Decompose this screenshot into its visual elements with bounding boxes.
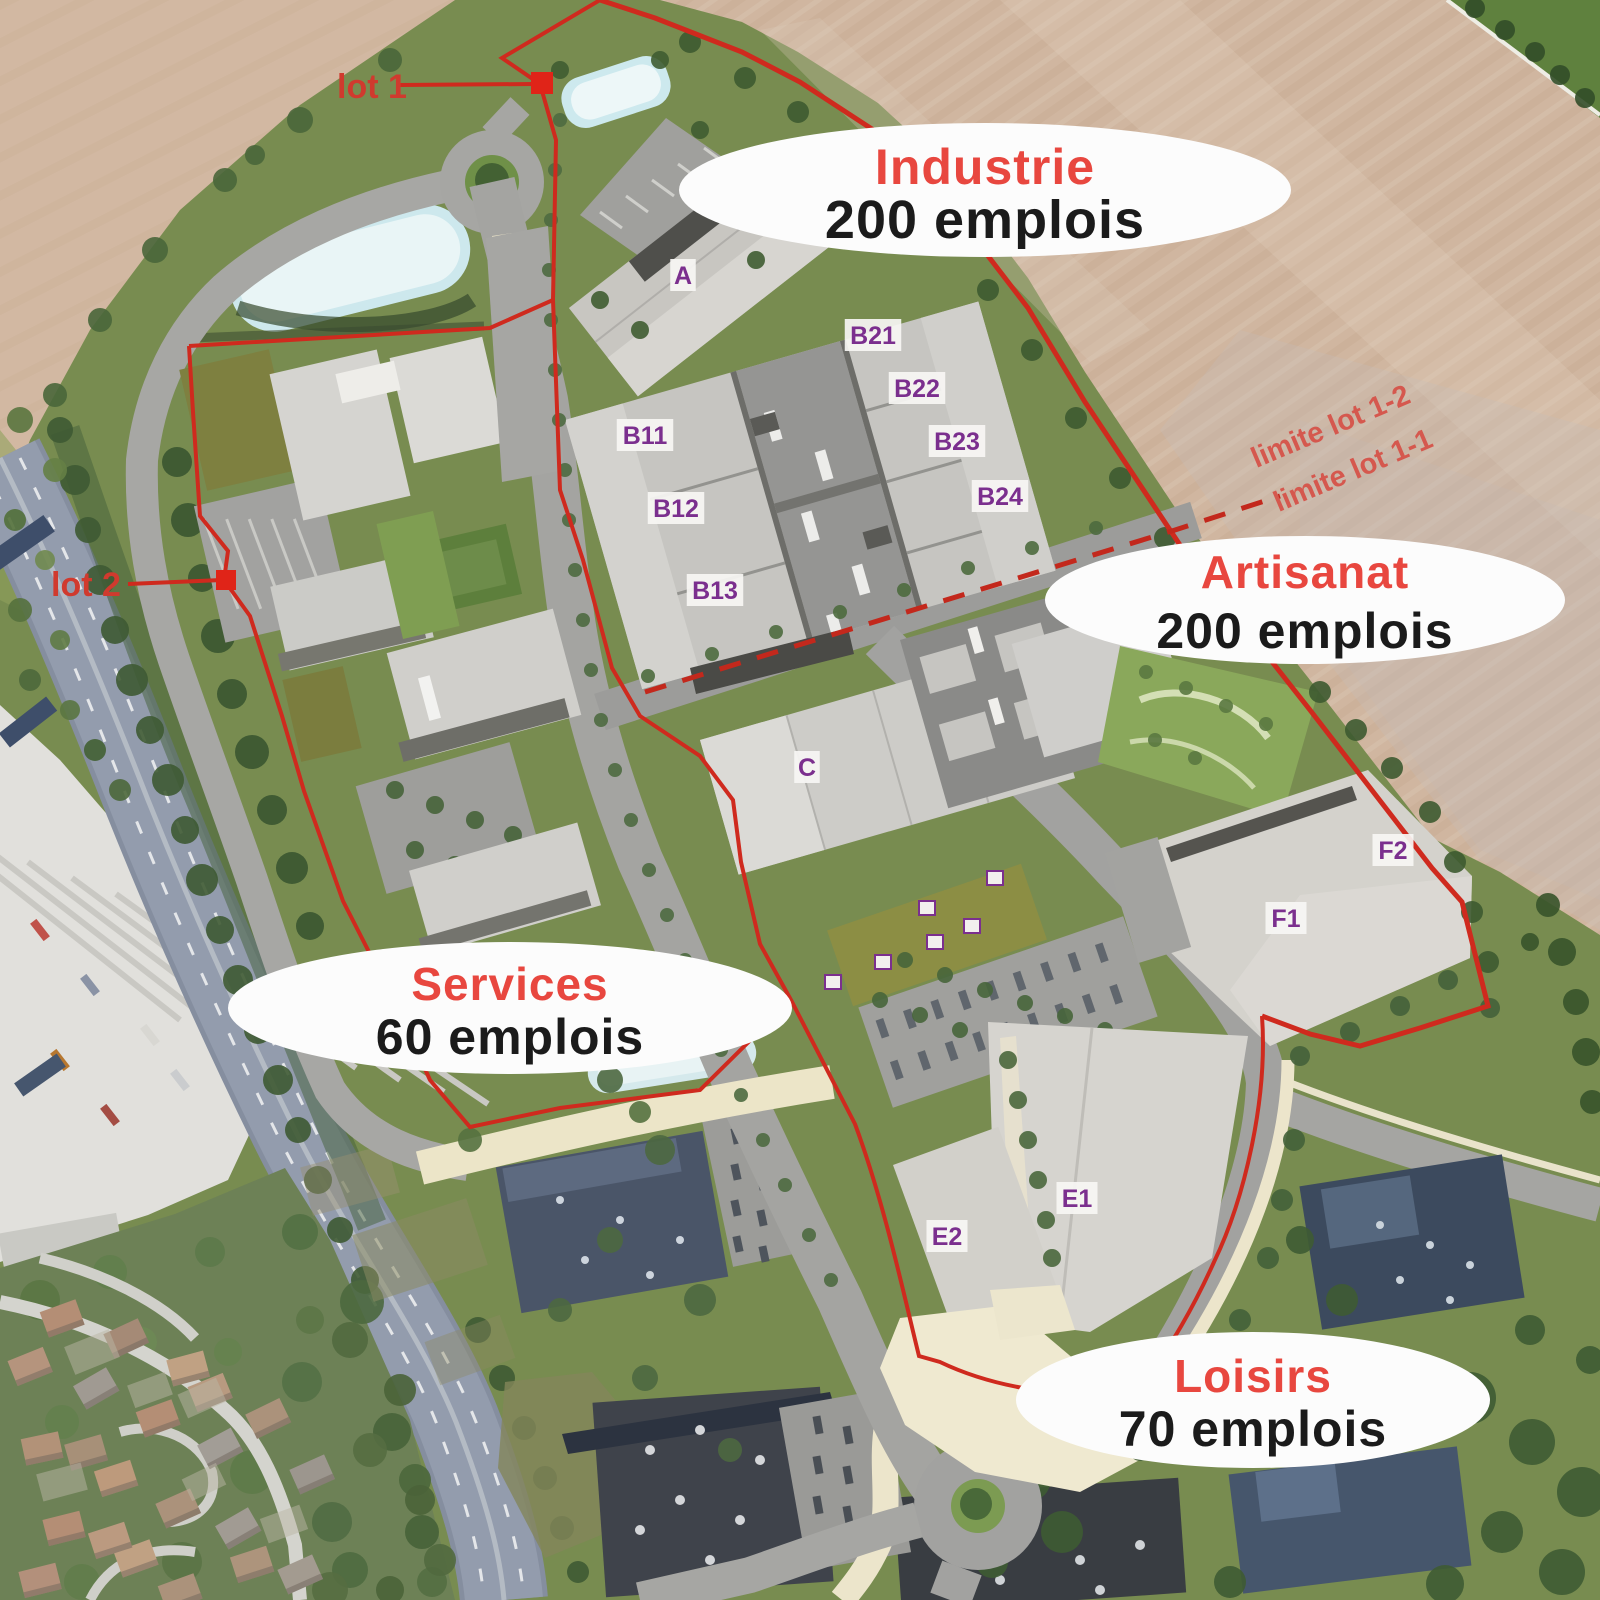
svg-text:lot 2: lot 2 — [51, 566, 121, 604]
svg-text:B23: B23 — [934, 428, 980, 456]
svg-text:B22: B22 — [894, 375, 940, 403]
svg-text:B24: B24 — [977, 483, 1023, 511]
svg-text:A: A — [674, 262, 692, 290]
svg-text:200 emplois: 200 emplois — [825, 190, 1145, 250]
svg-text:B12: B12 — [653, 495, 699, 523]
svg-text:F2: F2 — [1378, 837, 1407, 865]
svg-text:Loisirs: Loisirs — [1174, 1350, 1332, 1402]
svg-text:70 emplois: 70 emplois — [1119, 1401, 1387, 1457]
svg-text:Services: Services — [411, 958, 608, 1010]
svg-text:200 emplois: 200 emplois — [1156, 603, 1453, 659]
svg-text:B11: B11 — [623, 422, 668, 450]
svg-text:B21: B21 — [850, 322, 896, 350]
svg-text:E2: E2 — [932, 1223, 963, 1251]
svg-text:C: C — [798, 754, 816, 782]
svg-text:B13: B13 — [692, 577, 738, 605]
svg-text:F1: F1 — [1271, 905, 1300, 933]
svg-text:lot 1: lot 1 — [337, 68, 407, 106]
svg-text:Industrie: Industrie — [875, 139, 1095, 195]
svg-text:E1: E1 — [1062, 1185, 1093, 1213]
svg-text:Artisanat: Artisanat — [1201, 546, 1409, 598]
svg-text:60 emplois: 60 emplois — [376, 1009, 644, 1065]
